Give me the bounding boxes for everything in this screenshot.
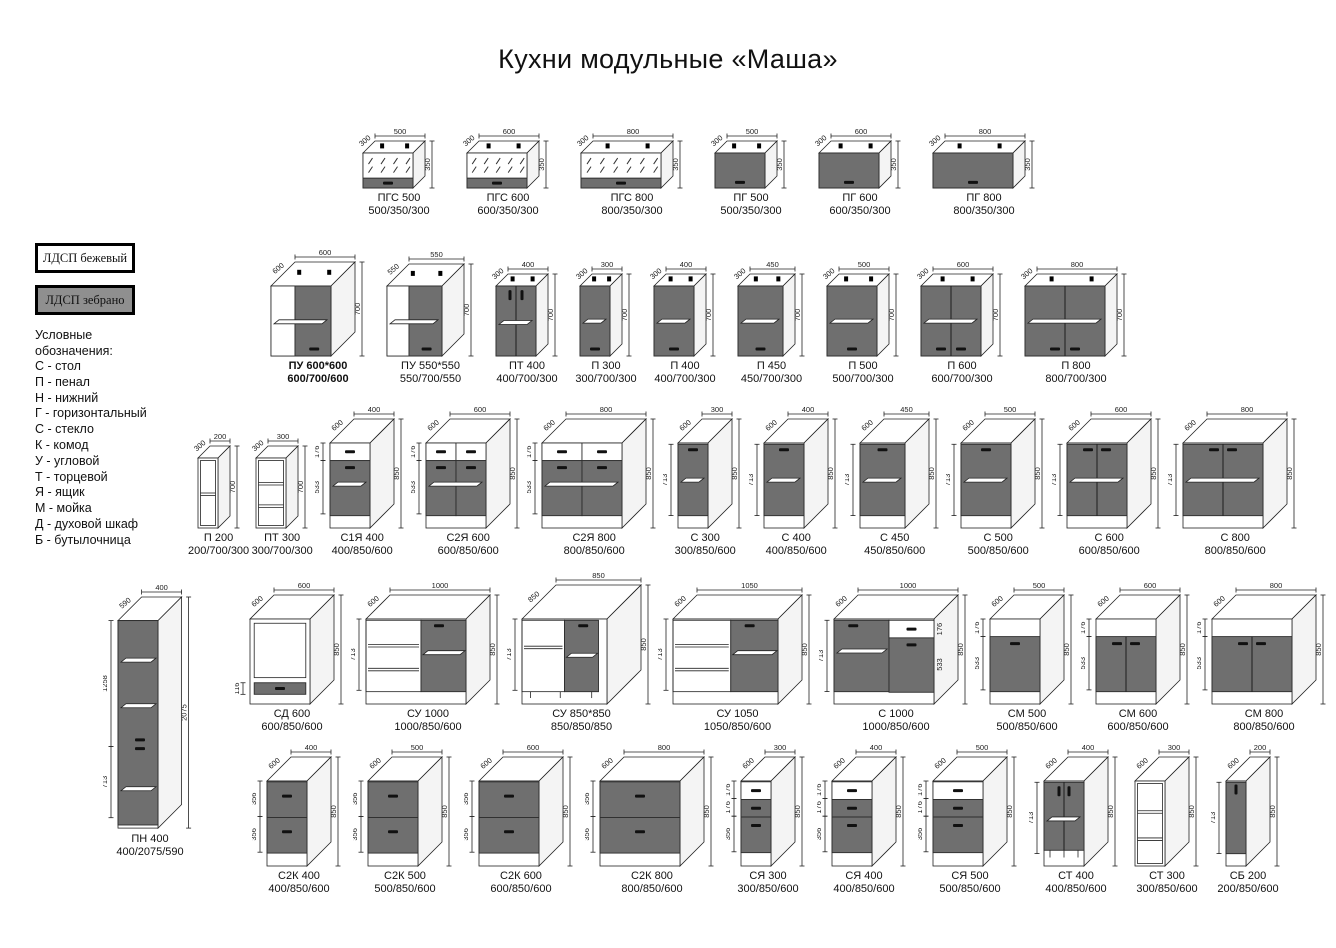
cabinet-card: 500300350ПГ 500500/350/300 xyxy=(710,126,792,218)
cabinet-drawing: 300600850713 xyxy=(663,404,747,532)
cabinet-drawing: 600300700 xyxy=(916,259,1008,360)
cabinet-row: 600600700ПУ 600*600600/700/600550550700П… xyxy=(266,236,1132,386)
svg-text:350: 350 xyxy=(775,158,784,171)
cabinet-card: 1000600850713176533С 10001000/850/600 xyxy=(819,580,973,734)
cabinet-drawing: 800600850713 xyxy=(1168,404,1302,532)
svg-text:400: 400 xyxy=(368,405,381,414)
cabinet-drawing: 500600850713 xyxy=(946,404,1050,532)
svg-text:713: 713 xyxy=(1052,473,1058,486)
cabinet-name: С 400 xyxy=(781,532,810,545)
svg-text:713: 713 xyxy=(663,473,669,486)
cabinet-size: 1000/850/600 xyxy=(394,721,461,734)
cabinet-name: П 800 xyxy=(1061,360,1090,373)
cabinet-size: 300/700/300 xyxy=(575,373,636,386)
svg-text:713: 713 xyxy=(1211,811,1217,824)
cabinet-size: 600/850/600 xyxy=(261,721,322,734)
cabinet-card: 500600850176176356СЯ 500500/850/600 xyxy=(918,742,1022,896)
svg-text:600: 600 xyxy=(957,260,970,269)
svg-text:1000: 1000 xyxy=(432,581,449,590)
svg-text:713: 713 xyxy=(819,649,825,662)
svg-text:356: 356 xyxy=(353,792,359,805)
svg-text:400: 400 xyxy=(522,260,535,269)
cabinet-size: 300/700/300 xyxy=(252,545,313,558)
svg-text:1050: 1050 xyxy=(741,581,758,590)
cabinet-size: 600/850/600 xyxy=(1107,721,1168,734)
cabinet-size: 800/850/600 xyxy=(1205,545,1266,558)
svg-text:533: 533 xyxy=(935,658,944,671)
cabinet-card: 400600850176176356СЯ 400400/850/600 xyxy=(817,742,911,896)
cabinet-card: 850850850713СУ 850*850850/850/850 xyxy=(507,570,656,734)
svg-text:800: 800 xyxy=(1270,581,1283,590)
cabinet-drawing: 850850850713 xyxy=(507,570,656,708)
svg-text:350: 350 xyxy=(671,158,680,171)
cabinet-name: С2К 400 xyxy=(278,870,320,883)
cabinet-row: 600600850116СД 600600/850/60010006008507… xyxy=(235,576,1331,734)
svg-text:356: 356 xyxy=(585,792,591,805)
svg-text:533: 533 xyxy=(975,657,981,670)
svg-text:176: 176 xyxy=(315,445,321,458)
cabinet-drawing: 400600850713 xyxy=(749,404,843,532)
svg-text:850: 850 xyxy=(440,805,449,818)
svg-text:850: 850 xyxy=(894,805,903,818)
cabinet-card: 450300700П 450450/700/300 xyxy=(733,259,810,386)
cabinet-name: ПГС 800 xyxy=(611,192,654,205)
cabinet-card: 400600850713СТ 400400/850/600 xyxy=(1029,742,1123,896)
cabinet-card: 500600850713С 500500/850/600 xyxy=(946,404,1050,558)
cabinet-size: 200/700/300 xyxy=(188,545,249,558)
cabinet-card: 800600850356356С2К 800800/850/600 xyxy=(585,742,719,896)
svg-text:176: 176 xyxy=(726,783,732,796)
svg-text:116: 116 xyxy=(235,682,241,694)
cabinet-size: 400/700/300 xyxy=(496,373,557,386)
svg-text:850: 850 xyxy=(1033,467,1042,480)
svg-text:700: 700 xyxy=(353,302,362,315)
svg-text:176: 176 xyxy=(527,445,533,458)
cabinet-drawing: 600600700 xyxy=(266,247,370,360)
cabinet-name: С 600 xyxy=(1094,532,1123,545)
cabinet-name: П 600 xyxy=(947,360,976,373)
cabinet-card: 500600850176533СМ 500500/850/600 xyxy=(975,580,1079,734)
cabinet-drawing: 600600850356356 xyxy=(464,742,578,870)
svg-text:350: 350 xyxy=(537,158,546,171)
svg-text:400: 400 xyxy=(680,260,693,269)
svg-text:356: 356 xyxy=(464,792,470,805)
cabinet-card: 300600850СТ 300300/850/600 xyxy=(1130,742,1204,896)
legend-item: Д - духовой шкаф xyxy=(35,517,205,533)
svg-text:700: 700 xyxy=(793,308,802,321)
cabinet-name: С2Я 600 xyxy=(446,532,489,545)
cabinet-name: С2К 600 xyxy=(500,870,542,883)
svg-text:713: 713 xyxy=(507,648,513,661)
cabinet-drawing: 400600850176533 xyxy=(315,404,409,532)
cabinet-drawing: 600600850176533 xyxy=(411,404,525,532)
cabinet-drawing: 500600850176533 xyxy=(975,580,1079,708)
cabinet-size: 600/350/300 xyxy=(829,205,890,218)
cabinet-card: 200300700П 200200/700/300 xyxy=(188,431,249,558)
cabinet-row: 200300700П 200200/700/300300300700ПТ 300… xyxy=(188,402,1302,558)
svg-text:850: 850 xyxy=(793,805,802,818)
svg-text:400: 400 xyxy=(1082,743,1095,752)
page: Кухни модульные «Маша» ЛДСП бежевый ЛДСП… xyxy=(0,0,1336,948)
svg-text:500: 500 xyxy=(394,127,407,136)
cabinet-name: ПГС 500 xyxy=(378,192,421,205)
cabinet-name: С 800 xyxy=(1220,532,1249,545)
svg-text:850: 850 xyxy=(1187,805,1196,818)
cabinet-card: 400600850713С 400400/850/600 xyxy=(749,404,843,558)
cabinet-drawing: 1050600850713 xyxy=(658,580,817,708)
svg-text:850: 850 xyxy=(508,467,517,480)
svg-text:600: 600 xyxy=(527,743,540,752)
svg-text:800: 800 xyxy=(627,127,640,136)
svg-text:600: 600 xyxy=(1144,581,1157,590)
svg-text:600: 600 xyxy=(503,127,516,136)
cabinet-size: 200/850/600 xyxy=(1217,883,1278,896)
cabinet-drawing: 500600850176176356 xyxy=(918,742,1022,870)
cabinet-size: 550/700/550 xyxy=(400,373,461,386)
cabinet-card: 400600850176533С1Я 400400/850/600 xyxy=(315,404,409,558)
cabinet-card: 400300700П 400400/700/300 xyxy=(649,259,721,386)
svg-text:700: 700 xyxy=(887,308,896,321)
svg-text:850: 850 xyxy=(1005,805,1014,818)
svg-text:356: 356 xyxy=(252,828,258,841)
cabinet-drawing: 600600850713 xyxy=(1052,404,1166,532)
svg-text:850: 850 xyxy=(1285,467,1294,480)
cabinet-drawing: 1000600850713176533 xyxy=(819,580,973,708)
cabinet-drawing: 40059020751258713 xyxy=(103,582,197,833)
cabinet-card: 400600850356356С2К 400400/850/600 xyxy=(252,742,346,896)
cabinet-card: 600300350ПГС 600600/350/300 xyxy=(462,126,554,218)
cabinet-card: 500600850356356С2К 500500/850/600 xyxy=(353,742,457,896)
legend-item: С - стол xyxy=(35,359,205,375)
svg-text:176: 176 xyxy=(817,783,823,796)
cabinet-card: 300600850176176356СЯ 300300/850/600 xyxy=(726,742,810,896)
cabinet-drawing: 600300350 xyxy=(462,126,554,192)
cabinet-card: 400300700ПТ 400400/700/300 xyxy=(491,259,563,386)
svg-text:600: 600 xyxy=(1115,405,1128,414)
svg-text:700: 700 xyxy=(228,480,237,493)
svg-text:713: 713 xyxy=(658,648,664,661)
cabinet-name: СД 600 xyxy=(274,708,311,721)
legend-item: Т - торцевой xyxy=(35,470,205,486)
material-swatch-zebrano: ЛДСП зебрано xyxy=(35,285,135,315)
svg-text:176: 176 xyxy=(817,801,823,814)
cabinet-drawing: 800300350 xyxy=(576,126,688,192)
legend-item: Г - горизонтальный xyxy=(35,406,205,422)
svg-text:700: 700 xyxy=(991,308,1000,321)
svg-text:400: 400 xyxy=(870,743,883,752)
svg-text:400: 400 xyxy=(155,583,168,592)
svg-text:356: 356 xyxy=(585,828,591,841)
svg-text:850: 850 xyxy=(332,643,341,656)
cabinet-card: 800600850713С 800800/850/600 xyxy=(1168,404,1302,558)
cabinet-card: 600300350ПГ 600600/350/300 xyxy=(814,126,906,218)
svg-text:713: 713 xyxy=(351,648,357,661)
svg-text:850: 850 xyxy=(1314,643,1323,656)
svg-text:1000: 1000 xyxy=(900,581,917,590)
cabinet-drawing: 600600850116 xyxy=(235,580,349,708)
svg-text:533: 533 xyxy=(1081,657,1087,670)
cabinet-size: 500/700/300 xyxy=(832,373,893,386)
svg-text:533: 533 xyxy=(1197,657,1203,670)
svg-text:850: 850 xyxy=(329,805,338,818)
cabinet-name: П 450 xyxy=(757,360,786,373)
cabinet-size: 400/2075/590 xyxy=(116,846,183,859)
cabinet-card: 1000600850713СУ 10001000/850/600 xyxy=(351,580,505,734)
cabinet-name: С2Я 800 xyxy=(572,532,615,545)
cabinet-drawing: 400300700 xyxy=(491,259,563,360)
svg-text:850: 850 xyxy=(592,571,605,580)
svg-text:700: 700 xyxy=(462,303,471,316)
cabinet-name: ПГС 600 xyxy=(487,192,530,205)
svg-text:1258: 1258 xyxy=(103,675,109,692)
cabinet-card: 600600850713С 600600/850/600 xyxy=(1052,404,1166,558)
cabinet-card: 300300700П 300300/700/300 xyxy=(575,259,637,386)
svg-text:850: 850 xyxy=(561,805,570,818)
svg-text:356: 356 xyxy=(464,828,470,841)
cabinet-size: 500/850/600 xyxy=(996,721,1057,734)
cabinet-drawing: 400600850176176356 xyxy=(817,742,911,870)
cabinet-card: 550550700ПУ 550*550550/700/550 xyxy=(382,249,479,386)
cabinet-size: 400/850/600 xyxy=(268,883,329,896)
svg-text:713: 713 xyxy=(103,776,109,789)
svg-text:200: 200 xyxy=(1254,743,1267,752)
svg-text:500: 500 xyxy=(976,743,989,752)
cabinet-card: 800300700П 800800/700/300 xyxy=(1020,259,1132,386)
svg-text:350: 350 xyxy=(1023,158,1032,171)
cabinet-name: СБ 200 xyxy=(1230,870,1267,883)
svg-text:356: 356 xyxy=(353,828,359,841)
svg-text:600: 600 xyxy=(298,581,311,590)
cabinet-name: СУ 850*850 xyxy=(552,708,611,721)
svg-text:533: 533 xyxy=(411,481,417,494)
svg-text:2075: 2075 xyxy=(180,704,189,721)
cabinet-drawing: 450600850713 xyxy=(845,404,944,532)
cabinet-name: ПУ 600*600 xyxy=(289,360,348,373)
cabinet-drawing: 400600850713 xyxy=(1029,742,1123,870)
cabinet-card: 450600850713С 450450/850/600 xyxy=(845,404,944,558)
svg-text:850: 850 xyxy=(956,643,965,656)
cabinet-name: СЯ 400 xyxy=(845,870,882,883)
svg-text:600: 600 xyxy=(855,127,868,136)
cabinet-size: 300/850/600 xyxy=(737,883,798,896)
cabinet-name: ПН 400 xyxy=(131,833,168,846)
cabinet-size: 300/850/600 xyxy=(675,545,736,558)
legend-list: С - столП - пеналН - нижнийГ - горизонта… xyxy=(35,359,205,549)
svg-text:176: 176 xyxy=(1081,621,1087,634)
svg-text:176: 176 xyxy=(935,622,944,635)
cabinet-name: П 400 xyxy=(670,360,699,373)
cabinet-name: П 200 xyxy=(204,532,233,545)
cabinet-size: 600/700/300 xyxy=(931,373,992,386)
cabinet-size: 600/700/600 xyxy=(287,373,348,386)
cabinet-size: 600/850/600 xyxy=(1079,545,1140,558)
svg-text:700: 700 xyxy=(296,480,305,493)
svg-text:850: 850 xyxy=(639,638,648,651)
svg-text:356: 356 xyxy=(918,827,924,840)
cabinet-name: С1Я 400 xyxy=(340,532,383,545)
svg-text:713: 713 xyxy=(749,473,755,486)
cabinet-size: 450/850/600 xyxy=(864,545,925,558)
svg-text:850: 850 xyxy=(488,643,497,656)
svg-text:500: 500 xyxy=(1004,405,1017,414)
svg-text:850: 850 xyxy=(730,467,739,480)
cabinet-drawing: 500300350 xyxy=(710,126,792,192)
svg-text:533: 533 xyxy=(315,481,321,494)
svg-text:713: 713 xyxy=(946,473,952,486)
cabinet-name: СУ 1050 xyxy=(716,708,758,721)
cabinet-size: 800/350/300 xyxy=(953,205,1014,218)
legend-item: Н - нижний xyxy=(35,391,205,407)
svg-text:500: 500 xyxy=(858,260,871,269)
cabinet-size: 500/850/600 xyxy=(374,883,435,896)
svg-text:550: 550 xyxy=(430,250,443,259)
cabinet-card: 40059020751258713ПН 400400/2075/590 xyxy=(103,582,197,859)
svg-text:800: 800 xyxy=(979,127,992,136)
cabinet-size: 600/350/300 xyxy=(477,205,538,218)
svg-text:500: 500 xyxy=(746,127,759,136)
cabinet-drawing: 600300350 xyxy=(814,126,906,192)
svg-text:700: 700 xyxy=(704,308,713,321)
svg-text:300: 300 xyxy=(601,260,614,269)
cabinet-card: 300300700ПТ 300300/700/300 xyxy=(251,431,313,558)
material-label-zebrano: ЛДСП зебрано xyxy=(45,293,124,308)
svg-text:400: 400 xyxy=(802,405,815,414)
svg-text:713: 713 xyxy=(1029,811,1035,824)
svg-text:300: 300 xyxy=(277,432,290,441)
cabinet-size: 500/350/300 xyxy=(368,205,429,218)
cabinet-card: 800300350ПГС 800800/350/300 xyxy=(576,126,688,218)
cabinet-name: СЯ 500 xyxy=(951,870,988,883)
cabinet-card: 800600850176533СМ 800800/850/600 xyxy=(1197,580,1331,734)
cabinet-row: 500300350ПГС 500500/350/300600300350ПГС … xyxy=(358,112,1040,218)
cabinet-drawing: 800600850356356 xyxy=(585,742,719,870)
svg-text:176: 176 xyxy=(411,445,417,458)
svg-text:400: 400 xyxy=(305,743,318,752)
cabinet-drawing: 800300350 xyxy=(928,126,1040,192)
tall-cabinet-slot: 40059020751258713ПН 400400/2075/590 xyxy=(103,582,197,859)
cabinet-card: 600300700П 600600/700/300 xyxy=(916,259,1008,386)
cabinet-size: 300/850/600 xyxy=(1136,883,1197,896)
cabinet-card: 800600850176533С2Я 800800/850/600 xyxy=(527,404,661,558)
cabinet-name: ПТ 300 xyxy=(264,532,300,545)
cabinet-drawing: 300600850176176356 xyxy=(726,742,810,870)
cabinet-drawing: 300600850 xyxy=(1130,742,1204,870)
cabinet-drawing: 550550700 xyxy=(382,249,479,360)
cabinet-drawing: 200300700 xyxy=(193,431,245,532)
svg-text:300: 300 xyxy=(711,405,724,414)
cabinet-drawing: 450300700 xyxy=(733,259,810,360)
cabinet-name: ПГ 600 xyxy=(842,192,877,205)
cabinet-card: 1050600850713СУ 10501050/850/600 xyxy=(658,580,817,734)
legend-item: С - стекло xyxy=(35,422,205,438)
cabinet-size: 1050/850/600 xyxy=(704,721,771,734)
cabinet-card: 500300350ПГС 500500/350/300 xyxy=(358,126,440,218)
svg-text:700: 700 xyxy=(620,308,629,321)
cabinet-card: 200600850713СБ 200200/850/600 xyxy=(1211,742,1285,896)
cabinet-name: СТ 400 xyxy=(1058,870,1094,883)
cabinet-name: С 500 xyxy=(983,532,1012,545)
cabinet-card: 300600850713С 300300/850/600 xyxy=(663,404,747,558)
svg-text:850: 850 xyxy=(1062,643,1071,656)
cabinet-card: 600600850176533С2Я 600600/850/600 xyxy=(411,404,525,558)
svg-text:176: 176 xyxy=(918,783,924,796)
cabinet-name: СУ 1000 xyxy=(407,708,449,721)
cabinet-name: П 500 xyxy=(848,360,877,373)
cabinet-size: 400/700/300 xyxy=(654,373,715,386)
cabinet-size: 400/850/600 xyxy=(766,545,827,558)
svg-text:850: 850 xyxy=(392,467,401,480)
svg-text:350: 350 xyxy=(889,158,898,171)
cabinet-size: 500/350/300 xyxy=(720,205,781,218)
svg-text:850: 850 xyxy=(1178,643,1187,656)
cabinet-drawing: 800300700 xyxy=(1020,259,1132,360)
legend-item: У - угловой xyxy=(35,454,205,470)
legend-item: К - комод xyxy=(35,438,205,454)
svg-text:300: 300 xyxy=(1168,743,1181,752)
svg-text:600: 600 xyxy=(474,405,487,414)
cabinet-name: С2К 800 xyxy=(631,870,673,883)
svg-text:356: 356 xyxy=(726,827,732,840)
cabinet-size: 500/850/600 xyxy=(939,883,1000,896)
svg-text:700: 700 xyxy=(1115,308,1124,321)
cabinet-size: 800/850/600 xyxy=(621,883,682,896)
cabinet-name: ПГ 800 xyxy=(966,192,1001,205)
cabinet-card: 600600850116СД 600600/850/600 xyxy=(235,580,349,734)
cabinet-drawing: 500300700 xyxy=(822,259,904,360)
cabinet-name: СМ 500 xyxy=(1008,708,1046,721)
svg-text:350: 350 xyxy=(423,158,432,171)
svg-text:356: 356 xyxy=(817,827,823,840)
cabinet-size: 400/850/600 xyxy=(833,883,894,896)
cabinet-name: С 450 xyxy=(880,532,909,545)
svg-text:176: 176 xyxy=(1197,621,1203,634)
cabinet-card: 600600850176533СМ 600600/850/600 xyxy=(1081,580,1195,734)
svg-text:500: 500 xyxy=(1033,581,1046,590)
cabinet-card: 600600850356356С2К 600600/850/600 xyxy=(464,742,578,896)
material-label-beige: ЛДСП бежевый xyxy=(43,251,127,266)
svg-text:850: 850 xyxy=(1149,467,1158,480)
cabinet-drawing: 400300700 xyxy=(649,259,721,360)
cabinet-drawing: 300300700 xyxy=(251,431,313,532)
cabinet-name: ПУ 550*550 xyxy=(401,360,460,373)
page-title: Кухни модульные «Маша» xyxy=(0,44,1336,75)
cabinet-size: 1000/850/600 xyxy=(862,721,929,734)
cabinet-size: 450/700/300 xyxy=(741,373,802,386)
svg-text:850: 850 xyxy=(702,805,711,818)
cabinet-name: С 300 xyxy=(690,532,719,545)
cabinet-drawing: 400600850356356 xyxy=(252,742,346,870)
cabinet-name: СТ 300 xyxy=(1149,870,1185,883)
cabinet-size: 600/850/600 xyxy=(490,883,551,896)
cabinet-size: 800/700/300 xyxy=(1045,373,1106,386)
cabinet-card: 500300700П 500500/700/300 xyxy=(822,259,904,386)
svg-text:600: 600 xyxy=(319,248,332,257)
svg-text:700: 700 xyxy=(546,308,555,321)
cabinet-card: 600600700ПУ 600*600600/700/600 xyxy=(266,247,370,386)
cabinet-name: СМ 800 xyxy=(1245,708,1283,721)
cabinet-size: 850/850/850 xyxy=(551,721,612,734)
cabinet-size: 800/850/600 xyxy=(564,545,625,558)
svg-text:450: 450 xyxy=(900,405,913,414)
cabinet-name: СЯ 300 xyxy=(749,870,786,883)
svg-text:850: 850 xyxy=(927,467,936,480)
cabinet-name: С 1000 xyxy=(878,708,913,721)
svg-text:533: 533 xyxy=(527,481,533,494)
svg-text:850: 850 xyxy=(644,467,653,480)
cabinet-name: СМ 600 xyxy=(1119,708,1157,721)
svg-text:300: 300 xyxy=(774,743,787,752)
svg-text:800: 800 xyxy=(1071,260,1084,269)
